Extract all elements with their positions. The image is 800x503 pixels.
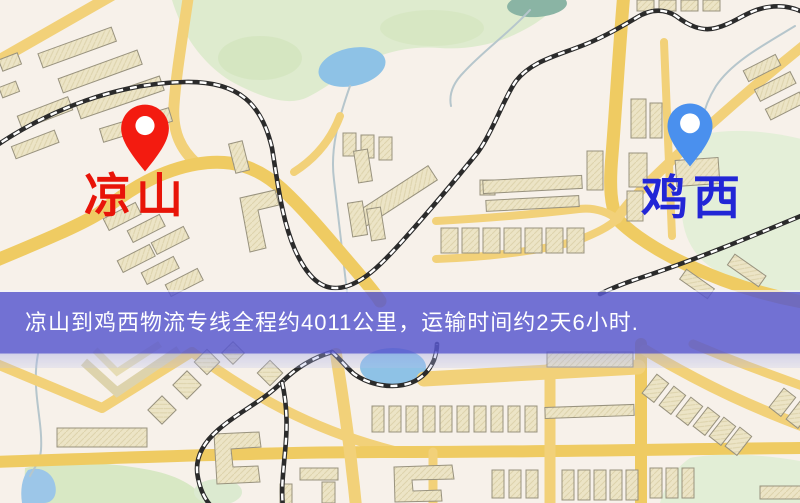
origin-pin-icon xyxy=(119,103,171,173)
origin-pin[interactable] xyxy=(119,103,171,173)
destination-pin[interactable] xyxy=(666,101,714,169)
destination-pin-icon xyxy=(666,101,714,169)
destination-label: 鸡西 xyxy=(641,176,745,223)
map-view[interactable]: 凉山 鸡西 凉山到鸡西物流专线全程约4011公里，运输时间约2天6小时. xyxy=(0,0,800,503)
origin-label: 凉山 xyxy=(84,174,188,221)
map-canvas xyxy=(0,0,800,503)
pin-shape xyxy=(121,105,169,172)
pin-shape xyxy=(668,104,713,167)
route-info-text: 凉山到鸡西物流专线全程约4011公里，运输时间约2天6小时. xyxy=(25,305,639,337)
pin-hole xyxy=(135,116,154,135)
route-info-banner: 凉山到鸡西物流专线全程约4011公里，运输时间约2天6小时. xyxy=(0,290,800,368)
pin-hole xyxy=(680,113,700,133)
